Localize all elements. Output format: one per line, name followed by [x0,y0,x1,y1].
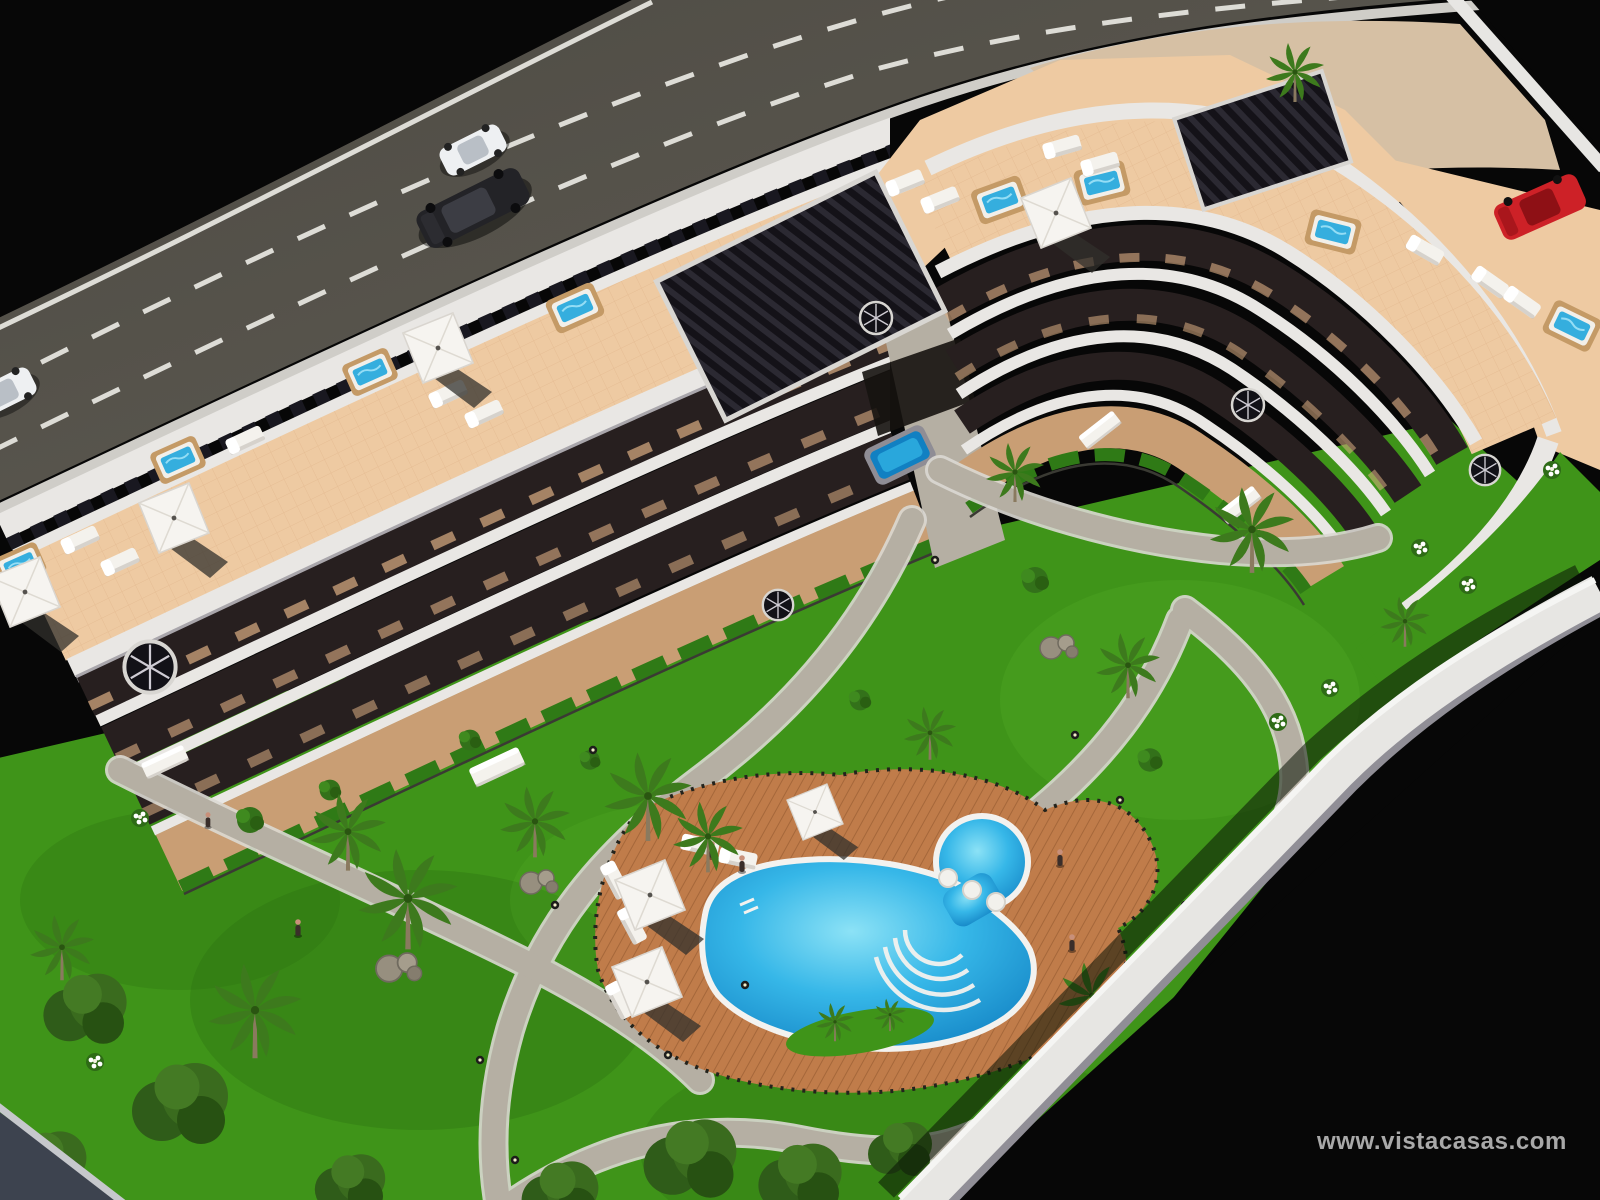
rock-cluster [520,870,558,894]
aerial-render [0,0,1600,1200]
spiral-staircase [1232,389,1264,421]
render-viewport: www.vistacasas.com [0,0,1600,1200]
watermark: www.vistacasas.com [1317,1128,1567,1156]
rock-cluster [1040,635,1078,659]
spiral-staircase [860,302,892,334]
spiral-staircase [1470,455,1500,485]
rock-cluster [376,953,422,982]
spiral-staircase [124,641,175,692]
spiral-staircase [763,590,793,620]
